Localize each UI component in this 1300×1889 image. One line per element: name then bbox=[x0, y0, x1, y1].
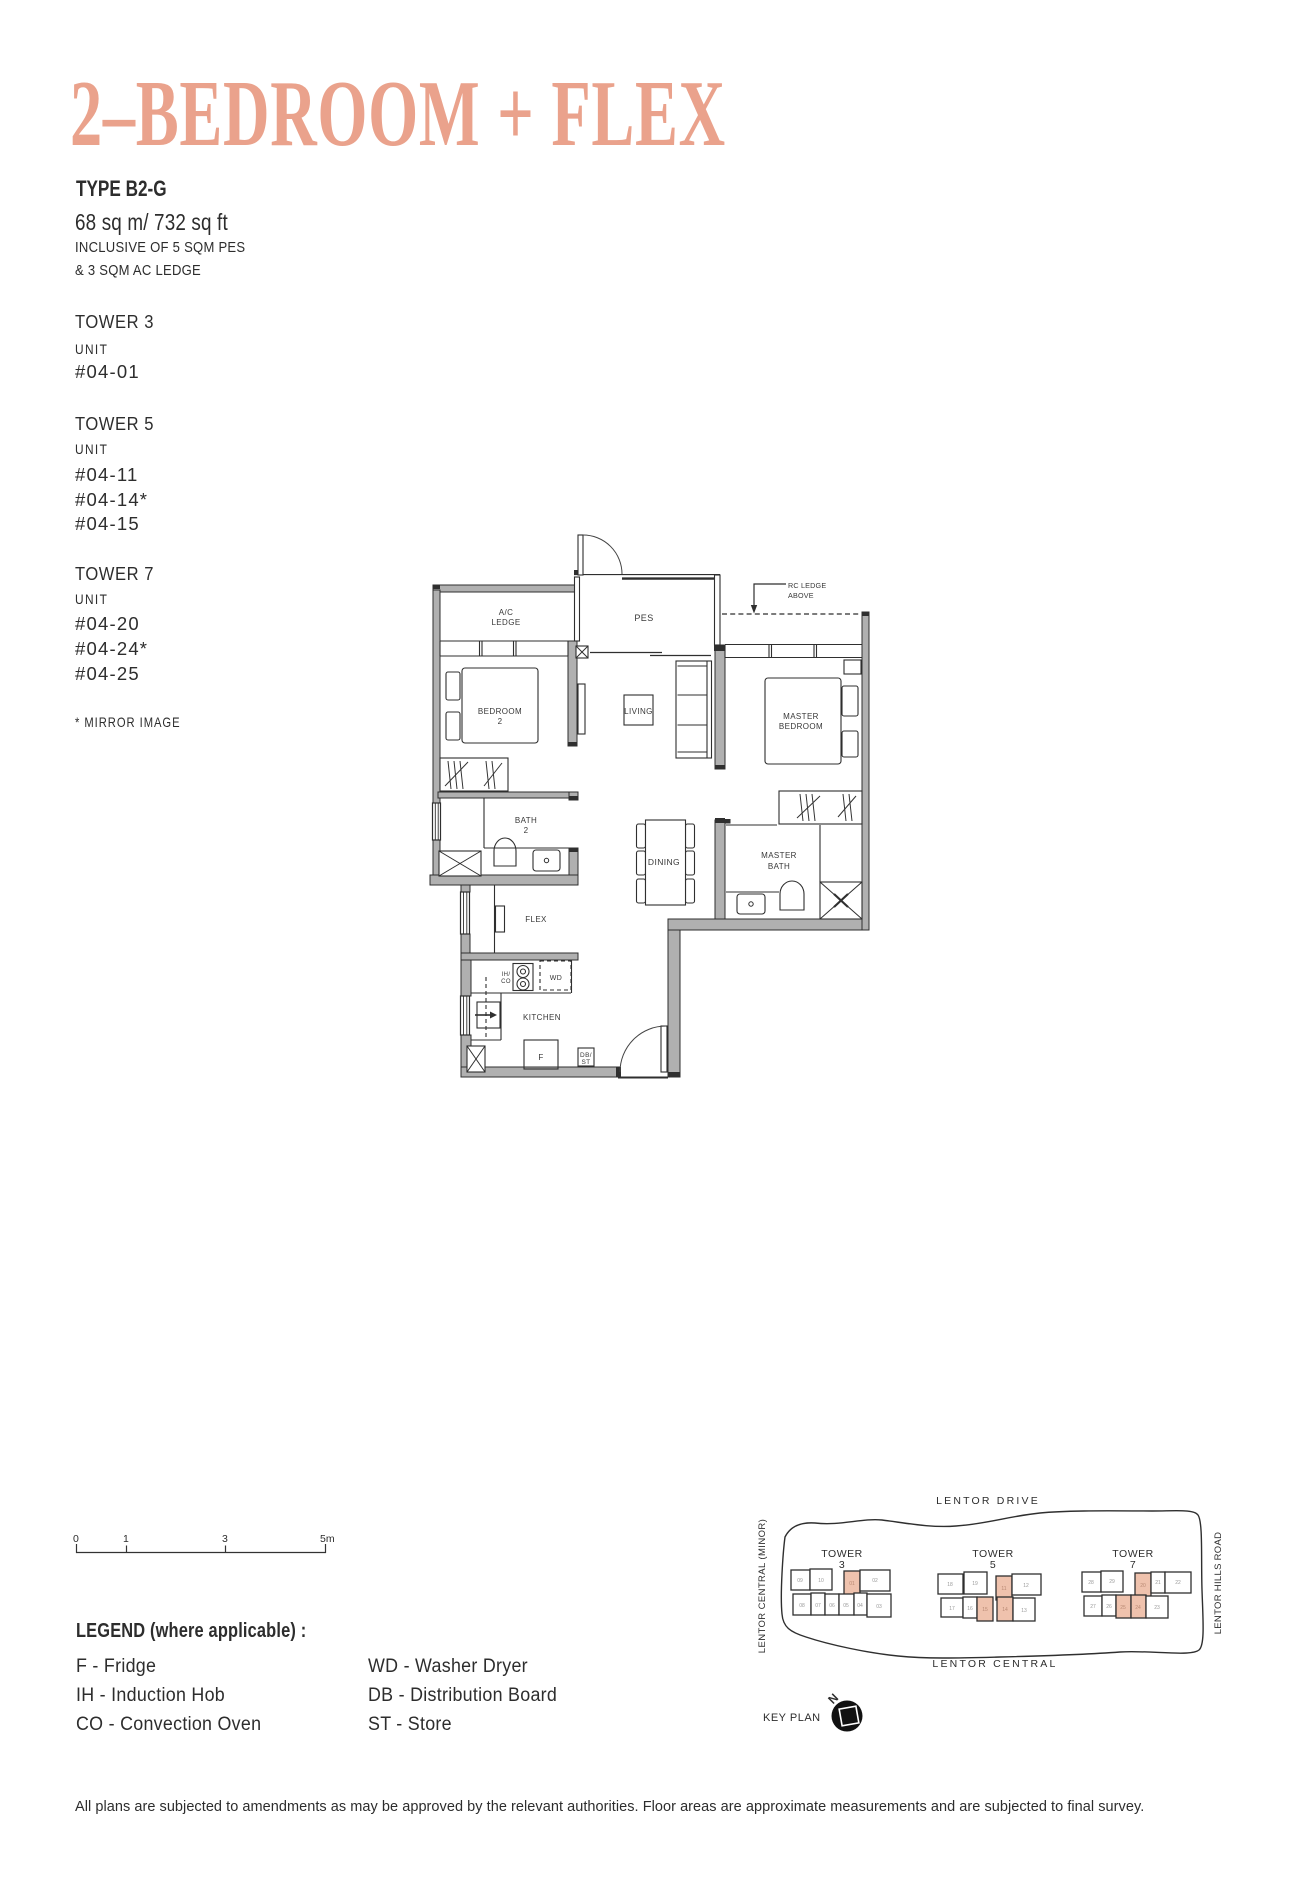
svg-text:23: 23 bbox=[1154, 1605, 1160, 1611]
svg-text:05: 05 bbox=[843, 1603, 849, 1609]
svg-text:DB/: DB/ bbox=[580, 1052, 592, 1059]
svg-text:01: 01 bbox=[849, 1581, 855, 1587]
svg-text:04: 04 bbox=[857, 1603, 863, 1609]
svg-text:22: 22 bbox=[1175, 1580, 1181, 1586]
svg-text:ST: ST bbox=[581, 1059, 590, 1066]
svg-text:IH/: IH/ bbox=[502, 972, 511, 978]
svg-text:3: 3 bbox=[222, 1533, 228, 1545]
svg-text:26: 26 bbox=[1106, 1604, 1112, 1610]
svg-text:7: 7 bbox=[1130, 1559, 1136, 1571]
svg-text:10: 10 bbox=[818, 1578, 824, 1584]
svg-text:03: 03 bbox=[876, 1604, 882, 1610]
svg-text:LENTOR CENTRAL (MINOR): LENTOR CENTRAL (MINOR) bbox=[757, 1519, 768, 1653]
svg-text:20: 20 bbox=[1140, 1583, 1146, 1589]
svg-text:F: F bbox=[538, 1053, 543, 1062]
svg-text:29: 29 bbox=[1109, 1579, 1115, 1585]
svg-text:A/C: A/C bbox=[499, 608, 514, 617]
svg-text:LIVING: LIVING bbox=[624, 707, 653, 716]
svg-text:MASTER: MASTER bbox=[783, 712, 819, 721]
svg-text:15: 15 bbox=[982, 1607, 988, 1613]
svg-text:5m: 5m bbox=[320, 1533, 335, 1545]
svg-text:21: 21 bbox=[1155, 1580, 1161, 1586]
svg-text:WD: WD bbox=[550, 975, 562, 982]
svg-text:CO: CO bbox=[501, 979, 511, 985]
svg-text:MASTER: MASTER bbox=[761, 851, 797, 860]
svg-text:LENTOR CENTRAL: LENTOR CENTRAL bbox=[932, 1658, 1057, 1670]
svg-text:KITCHEN: KITCHEN bbox=[523, 1013, 561, 1022]
svg-text:3: 3 bbox=[839, 1559, 845, 1571]
svg-text:LENTOR HILLS ROAD: LENTOR HILLS ROAD bbox=[1213, 1532, 1224, 1635]
svg-text:2: 2 bbox=[498, 717, 503, 726]
svg-text:14: 14 bbox=[1002, 1607, 1008, 1613]
svg-text:LEDGE: LEDGE bbox=[491, 618, 520, 627]
svg-text:BATH: BATH bbox=[515, 816, 537, 825]
svg-text:5: 5 bbox=[990, 1559, 996, 1571]
svg-text:PES: PES bbox=[634, 613, 653, 623]
svg-text:28: 28 bbox=[1088, 1580, 1094, 1586]
svg-text:24: 24 bbox=[1135, 1605, 1141, 1611]
svg-text:02: 02 bbox=[872, 1578, 878, 1584]
svg-text:RC LEDGE: RC LEDGE bbox=[788, 581, 826, 590]
svg-text:11: 11 bbox=[1001, 1586, 1006, 1592]
svg-text:BEDROOM: BEDROOM bbox=[478, 707, 522, 716]
svg-text:LENTOR DRIVE: LENTOR DRIVE bbox=[936, 1495, 1040, 1507]
svg-text:13: 13 bbox=[1021, 1608, 1027, 1614]
svg-text:09: 09 bbox=[797, 1578, 803, 1584]
svg-text:27: 27 bbox=[1090, 1604, 1096, 1610]
svg-text:DINING: DINING bbox=[648, 857, 680, 867]
svg-text:19: 19 bbox=[972, 1581, 978, 1587]
svg-text:0: 0 bbox=[73, 1533, 79, 1545]
svg-text:18: 18 bbox=[947, 1582, 953, 1588]
svg-text:25: 25 bbox=[1120, 1605, 1126, 1611]
svg-text:FLEX: FLEX bbox=[525, 915, 547, 924]
svg-text:12: 12 bbox=[1023, 1583, 1029, 1589]
svg-text:1: 1 bbox=[123, 1533, 129, 1545]
svg-text:ABOVE: ABOVE bbox=[788, 591, 814, 600]
svg-text:16: 16 bbox=[967, 1606, 973, 1612]
svg-text:17: 17 bbox=[949, 1606, 955, 1612]
svg-text:06: 06 bbox=[829, 1603, 835, 1609]
svg-text:BEDROOM: BEDROOM bbox=[779, 722, 823, 731]
svg-text:BATH: BATH bbox=[768, 862, 790, 871]
svg-text:07: 07 bbox=[815, 1603, 821, 1609]
svg-text:KEY PLAN: KEY PLAN bbox=[763, 1712, 821, 1724]
svg-text:2: 2 bbox=[524, 826, 529, 835]
svg-text:08: 08 bbox=[799, 1603, 805, 1609]
